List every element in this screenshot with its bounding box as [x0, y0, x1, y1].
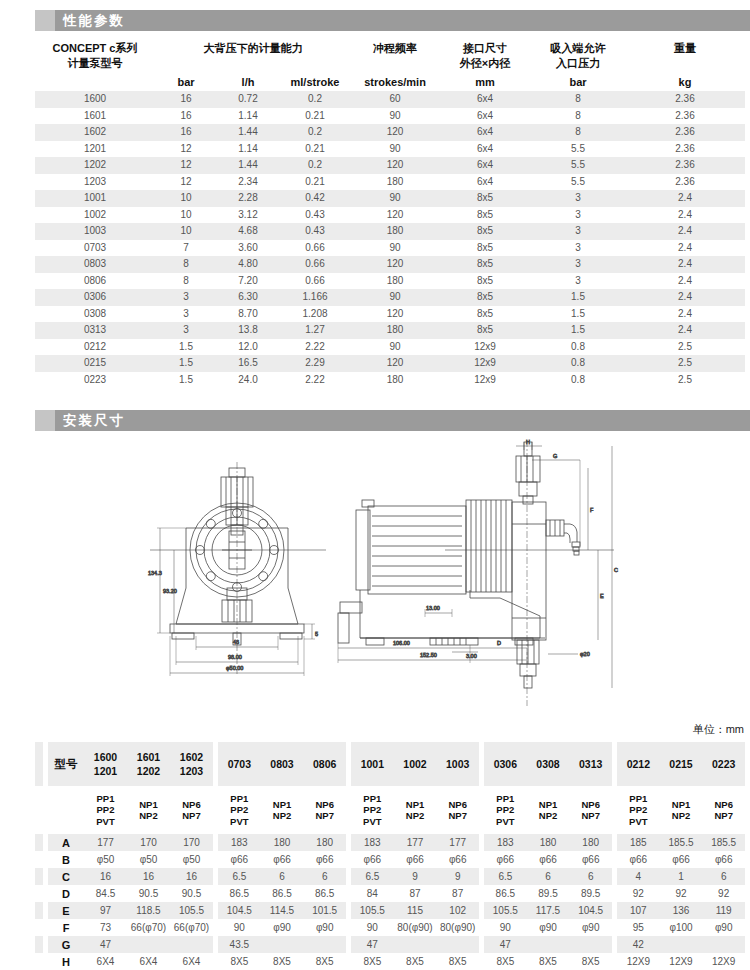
dim-cell: 6	[527, 868, 570, 885]
dim-cell: PP1PP2PVT	[218, 786, 261, 834]
dim-group-4: 021202150223	[617, 742, 745, 786]
dim-cell: φ90	[527, 919, 570, 936]
side-view-drawing: H G F E C 13.00 3.00 106.00 D 152.50 φ20	[338, 439, 618, 706]
dim-cell: 105.5	[351, 902, 394, 919]
dim-cell: 1	[660, 868, 703, 885]
perf-unit-strokesmin: strokes/min	[351, 74, 439, 91]
perf-cell: 1602	[35, 124, 155, 141]
dim-group-1: 86.586.586.5	[218, 885, 346, 902]
perf-cell: 16	[155, 108, 217, 125]
perf-cell: 0.8	[531, 355, 625, 372]
perf-header-weight: 重量	[625, 36, 745, 74]
perf-row-0306: 030636.301.166908x51.52.4	[35, 289, 745, 306]
perf-cell: 6x4	[439, 174, 531, 191]
row-edge	[35, 786, 43, 834]
perf-cell: 180	[351, 372, 439, 389]
dim-cell: 0313	[569, 742, 612, 786]
dim-row-label: D	[48, 885, 84, 902]
dim-group-1: 6.566	[218, 868, 346, 885]
dim-cell: φ90	[569, 919, 612, 936]
dim-cell: NP1NP2	[527, 786, 570, 834]
row-edge	[35, 834, 43, 851]
perf-cell: 1.44	[217, 157, 279, 174]
dim-cell: PP1PP2PVT	[617, 786, 660, 834]
perf-cell: 12	[155, 141, 217, 158]
perf-cell: 2.4	[625, 289, 745, 306]
dim-cell: 16	[84, 868, 127, 885]
dim-cell: φ66	[660, 851, 703, 868]
dim-cell: NP6NP7	[170, 786, 213, 834]
perf-cell: 3	[155, 306, 217, 323]
dim-cell: 102	[436, 902, 479, 919]
dim-row-label: A	[48, 834, 84, 851]
perf-row-1002: 1002103.120.431208x532.4	[35, 207, 745, 224]
dim-cell: 1001	[351, 742, 394, 786]
perf-cell: 120	[351, 355, 439, 372]
perf-cell: 90	[351, 108, 439, 125]
perf-cell: 1003	[35, 223, 155, 240]
dim-cell	[170, 936, 213, 953]
dim-cell: 105.5	[170, 902, 213, 919]
dim-row-G: G4743.5474742	[35, 936, 745, 953]
perf-cell: 8	[531, 91, 625, 108]
dim-cell: 104.5	[569, 902, 612, 919]
perf-cell: 1.44	[217, 124, 279, 141]
dim-cell: φ50	[127, 851, 170, 868]
dim-cell: 105.5	[484, 902, 527, 919]
dim-row-label: C	[48, 868, 84, 885]
perf-unit-kg: kg	[625, 74, 745, 91]
perf-cell: 3	[531, 240, 625, 257]
perf-row-1203: 1203122.340.211806x45.52.36	[35, 174, 745, 191]
dim-cell: 12X9	[660, 953, 703, 970]
dim-cell: 86.5	[261, 885, 304, 902]
perf-cell: 0806	[35, 273, 155, 290]
dim-cell: NP6NP7	[436, 786, 479, 834]
dim-cell: 8X5	[569, 953, 612, 970]
dim-cell: 43.5	[218, 936, 261, 953]
perf-cell: 6x4	[439, 124, 531, 141]
dim-cell: 180	[261, 834, 304, 851]
dim-group-0: F7366(φ70)66(φ70)	[48, 919, 213, 936]
perf-cell: 2.5	[625, 355, 745, 372]
dim-group-3: 030603080313	[484, 742, 612, 786]
dim-cell: 8X5	[351, 953, 394, 970]
perf-cell: 0.21	[279, 108, 351, 125]
row-edge	[35, 936, 43, 953]
dim-cell: 6	[702, 868, 745, 885]
perf-row-0223: 02231.524.02.2218012x90.82.5	[35, 372, 745, 389]
dim-table: 型号16001201160112021602120307030803080610…	[35, 742, 745, 970]
dim-cell: 177	[436, 834, 479, 851]
dim-cell: NP1NP2	[660, 786, 703, 834]
dim-cell: 183	[484, 834, 527, 851]
dim-group-2: 183177177	[351, 834, 479, 851]
dim-cell: 16001201	[84, 742, 127, 786]
dim-cell: 86.5	[303, 885, 346, 902]
perf-row-0313: 0313313.81.271808x51.52.4	[35, 322, 745, 339]
perf-unit-lh: l/h	[217, 74, 279, 91]
dim-cell: φ66	[351, 851, 394, 868]
dim-cell: 86.5	[484, 885, 527, 902]
perf-row-1600: 1600160.720.2606x482.36	[35, 91, 745, 108]
perf-cell: 0.8	[531, 372, 625, 389]
perf-cell: 7	[155, 240, 217, 257]
perf-cell: 1.5	[531, 322, 625, 339]
dim-cell: 6.5	[351, 868, 394, 885]
perf-cell: 2.29	[279, 355, 351, 372]
dim-cell: 114.5	[261, 902, 304, 919]
dim-cell: 6	[303, 868, 346, 885]
perf-cell: 0.2	[279, 124, 351, 141]
dim-cell: φ66	[617, 851, 660, 868]
dim-group-0: PP1PP2PVTNP1NP2NP6NP7	[48, 786, 213, 834]
dim-cell: 115	[394, 902, 437, 919]
perf-cell: 1001	[35, 190, 155, 207]
perf-cell: 8x5	[439, 289, 531, 306]
dim-cell: φ66	[394, 851, 437, 868]
dim-cell: 84	[351, 885, 394, 902]
dim-cell: 16011202	[127, 742, 170, 786]
perf-cell: 180	[351, 223, 439, 240]
perf-row-1201: 1201121.140.21906x45.52.36	[35, 141, 745, 158]
dim-cell	[303, 936, 346, 953]
perf-cell: 180	[351, 273, 439, 290]
perf-cell: 10	[155, 207, 217, 224]
dim-cell: PP1PP2PVT	[351, 786, 394, 834]
perf-row-0803: 080384.800.661208x532.4	[35, 256, 745, 273]
perf-cell: 3.60	[217, 240, 279, 257]
perf-cell: 1.27	[279, 322, 351, 339]
dim-cell: 8X5	[527, 953, 570, 970]
dim-cell: φ66	[436, 851, 479, 868]
dim-cell: 119	[702, 902, 745, 919]
perf-cell: 180	[351, 322, 439, 339]
perf-cell: 0.2	[279, 157, 351, 174]
perf-cell: 6x4	[439, 108, 531, 125]
dim-row-F: F7366(φ70)66(φ70)90φ90φ909080(φ90)80(φ90…	[35, 919, 745, 936]
dim-cell: NP6NP7	[702, 786, 745, 834]
dim-row-label: G	[48, 936, 84, 953]
perf-cell: 2.36	[625, 157, 745, 174]
dim-cell: 16	[170, 868, 213, 885]
dim-cell	[527, 936, 570, 953]
dim-cell: 136	[660, 902, 703, 919]
dim-group-0: C161616	[48, 868, 213, 885]
dim-cell: 1003	[436, 742, 479, 786]
perf-cell: 12x9	[439, 372, 531, 389]
dim-cell: 97	[84, 902, 127, 919]
perf-cell: 90	[351, 289, 439, 306]
dim-cell: 180	[303, 834, 346, 851]
perf-cell: 0.8	[531, 339, 625, 356]
dim-header-models: 型号16001201160112021602120307030803080610…	[35, 742, 745, 786]
perf-cell: 6x4	[439, 91, 531, 108]
dim-cell: 9	[394, 868, 437, 885]
perf-cell: 0.72	[217, 91, 279, 108]
side-dim-slot: 13.00	[426, 605, 440, 611]
unit-note: 单位：mm	[693, 722, 744, 737]
dim-group-3: 8X58X58X5	[484, 953, 612, 970]
dim-cell: NP1NP2	[394, 786, 437, 834]
dim-cell: 6X4	[170, 953, 213, 970]
perf-row-1003: 1003104.680.431808x532.4	[35, 223, 745, 240]
dim-group-3: 47	[484, 936, 612, 953]
dim-group-4: 107136119	[617, 902, 745, 919]
perf-cell: 0.43	[279, 223, 351, 240]
front-dim-height-total: 134.3	[148, 570, 162, 576]
dim-group-1: PP1PP2PVTNP1NP2NP6NP7	[218, 786, 346, 834]
dim-cell: 89.5	[527, 885, 570, 902]
perf-cell: 0306	[35, 289, 155, 306]
dim-group-0: H6X46X46X4	[48, 953, 213, 970]
dim-row-H: H6X46X46X48X58X58X58X58X58X58X58X58X512X…	[35, 953, 745, 970]
perf-cell: 6x4	[439, 157, 531, 174]
dim-cell	[569, 936, 612, 953]
perf-cell: 1.14	[217, 108, 279, 125]
perf-table-body: 1600160.720.2606x482.361601161.140.21906…	[35, 91, 745, 388]
dim-cell: 177	[394, 834, 437, 851]
perf-cell: 0803	[35, 256, 155, 273]
perf-cell: 120	[351, 157, 439, 174]
perf-unit-bar: bar	[155, 74, 217, 91]
dim-cell: 87	[394, 885, 437, 902]
dim-cell: 104.5	[218, 902, 261, 919]
perf-cell: 2.4	[625, 256, 745, 273]
performance-table: CONCEPT c系列 计量泵型号 大背压下的计量能力 冲程频率 接口尺寸 外径…	[35, 36, 745, 388]
dim-cell: 8X5	[261, 953, 304, 970]
perf-cell: 8	[155, 273, 217, 290]
perf-cell: 1601	[35, 108, 155, 125]
dim-cell: φ66	[484, 851, 527, 868]
perf-cell: 2.28	[217, 190, 279, 207]
perf-cell: 16.5	[217, 355, 279, 372]
dim-cell: PP1PP2PVT	[84, 786, 127, 834]
perf-cell: 8x5	[439, 322, 531, 339]
perf-cell: 1201	[35, 141, 155, 158]
dim-group-2: 9080(φ90)80(φ90)	[351, 919, 479, 936]
perf-row-0215: 02151.516.52.2912012x90.82.5	[35, 355, 745, 372]
perf-cell: 8x5	[439, 306, 531, 323]
dim-group-0: A177170170	[48, 834, 213, 851]
perf-cell: 2.4	[625, 306, 745, 323]
installation-section-title: 安装尺寸	[55, 410, 125, 431]
dim-cell: φ66	[702, 851, 745, 868]
dim-cell: 12X9	[702, 953, 745, 970]
perf-unit-mm: mm	[439, 74, 531, 91]
dim-cell: 87	[436, 885, 479, 902]
row-edge	[35, 851, 43, 868]
dim-group-4: 12X912X912X9	[617, 953, 745, 970]
dim-group-2: 105.5115102	[351, 902, 479, 919]
perf-cell: 5.5	[531, 157, 625, 174]
perf-cell: 2.5	[625, 339, 745, 356]
dim-cell: 9	[436, 868, 479, 885]
perf-cell: 8	[531, 108, 625, 125]
perf-cell: 8x5	[439, 273, 531, 290]
dim-cell: φ90	[303, 919, 346, 936]
dim-row-C: C1616166.5666.5996.566416	[35, 868, 745, 885]
dim-cell: φ90	[261, 919, 304, 936]
side-dim-c: C	[614, 567, 618, 573]
dim-cell: 4	[617, 868, 660, 885]
perf-cell: 12.0	[217, 339, 279, 356]
dim-cell: 180	[569, 834, 612, 851]
perf-cell: 8.70	[217, 306, 279, 323]
perf-cell: 2.4	[625, 223, 745, 240]
dim-group-4: 95φ100φ90	[617, 919, 745, 936]
perf-cell: 2.36	[625, 108, 745, 125]
dim-row-A: A177170170183180180183177177183180180185…	[35, 834, 745, 851]
perf-cell: 0212	[35, 339, 155, 356]
dim-cell: NP6NP7	[303, 786, 346, 834]
perf-cell: 3	[531, 207, 625, 224]
perf-cell: 3	[531, 273, 625, 290]
perf-cell: 8	[531, 124, 625, 141]
perf-cell: 8x5	[439, 256, 531, 273]
front-dim-width-overall: φ50.00	[226, 665, 243, 671]
perf-cell: 1.5	[155, 339, 217, 356]
dim-cell: 47	[84, 936, 127, 953]
side-dim-e: E	[600, 593, 604, 599]
perf-header-port-size: 接口尺寸 外径×内径	[439, 36, 531, 74]
dim-cell: 185	[617, 834, 660, 851]
perf-cell: 1002	[35, 207, 155, 224]
dim-group-3: 6.566	[484, 868, 612, 885]
perf-cell: 0.21	[279, 141, 351, 158]
dim-cell: 177	[84, 834, 127, 851]
perf-cell: 2.4	[625, 273, 745, 290]
perf-cell: 12x9	[439, 355, 531, 372]
dim-cell: φ100	[660, 919, 703, 936]
dim-group-1: 183180180	[218, 834, 346, 851]
perf-cell: 2.34	[217, 174, 279, 191]
perf-row-1001: 1001102.280.42908x532.4	[35, 190, 745, 207]
perf-cell: 3	[155, 289, 217, 306]
perf-cell: 90	[351, 141, 439, 158]
dim-header-materials: PP1PP2PVTNP1NP2NP6NP7PP1PP2PVTNP1NP2NP6N…	[35, 786, 745, 834]
perf-unit-mlstroke: ml/stroke	[279, 74, 351, 91]
dim-cell: 8X5	[484, 953, 527, 970]
dim-cell: 0308	[527, 742, 570, 786]
perf-cell: 0.66	[279, 256, 351, 273]
perf-header-model: CONCEPT c系列 计量泵型号	[35, 36, 155, 91]
dim-cell: 86.5	[218, 885, 261, 902]
perf-cell: 60	[351, 91, 439, 108]
dim-cell: 92	[702, 885, 745, 902]
perf-cell: 1.208	[279, 306, 351, 323]
dim-group-3: PP1PP2PVTNP1NP2NP6NP7	[484, 786, 612, 834]
perf-cell: 3	[531, 190, 625, 207]
dim-cell	[394, 936, 437, 953]
dim-row-label	[48, 786, 84, 834]
dim-cell: 90	[351, 919, 394, 936]
perf-cell: 0223	[35, 372, 155, 389]
row-edge	[35, 919, 43, 936]
perf-cell: 1.14	[217, 141, 279, 158]
perf-cell: 3.12	[217, 207, 279, 224]
dim-cell: 80(φ90)	[436, 919, 479, 936]
perf-cell: 120	[351, 256, 439, 273]
row-edge	[35, 868, 43, 885]
dim-cell: 8X5	[303, 953, 346, 970]
row-edge	[35, 953, 43, 970]
section-bar-tab	[35, 410, 55, 431]
dim-cell: 118.5	[127, 902, 170, 919]
dim-cell: 66(φ70)	[170, 919, 213, 936]
side-dim-port: φ20	[580, 651, 590, 657]
dim-cell: 89.5	[569, 885, 612, 902]
perf-cell: 8x5	[439, 190, 531, 207]
dim-group-4: PP1PP2PVTNP1NP2NP6NP7	[617, 786, 745, 834]
dim-group-3: 86.589.589.5	[484, 885, 612, 902]
perf-cell: 0313	[35, 322, 155, 339]
perf-cell: 7.20	[217, 273, 279, 290]
perf-cell: 2.22	[279, 339, 351, 356]
perf-header-row: CONCEPT c系列 计量泵型号 大背压下的计量能力 冲程频率 接口尺寸 外径…	[35, 36, 745, 74]
side-dim-overall-len: 152.50	[420, 652, 437, 658]
dim-cell: 6.5	[218, 868, 261, 885]
dim-cell: 16021203	[170, 742, 213, 786]
dim-cell: 0803	[261, 742, 304, 786]
perf-header-stroke-frequency: 冲程频率	[351, 36, 439, 74]
perf-cell: 0.66	[279, 273, 351, 290]
perf-cell: 1.5	[531, 289, 625, 306]
dim-group-0: G47	[48, 936, 213, 953]
perf-cell: 2.4	[625, 322, 745, 339]
dim-group-0: D84.590.590.5	[48, 885, 213, 902]
perf-cell: 0308	[35, 306, 155, 323]
dim-group-0: E97118.5105.5	[48, 902, 213, 919]
dim-group-4: 42	[617, 936, 745, 953]
dim-group-4: 416	[617, 868, 745, 885]
perf-cell: 10	[155, 190, 217, 207]
dim-cell: 1002	[394, 742, 437, 786]
dim-cell: 12X9	[617, 953, 660, 970]
dim-cell: 80(φ90)	[394, 919, 437, 936]
perf-cell: 3	[531, 223, 625, 240]
perf-cell: 0.21	[279, 174, 351, 191]
performance-section-bar: 性能参数	[35, 10, 750, 31]
dim-cell: 66(φ70)	[127, 919, 170, 936]
dim-group-3: 183180180	[484, 834, 612, 851]
perf-cell: 0.66	[279, 240, 351, 257]
row-edge	[35, 742, 43, 786]
perf-cell: 8	[155, 256, 217, 273]
perf-cell: 8x5	[439, 223, 531, 240]
dim-cell: NP1NP2	[261, 786, 304, 834]
perf-header-suction: 吸入端允许 入口压力	[531, 36, 625, 74]
perf-cell: 90	[351, 190, 439, 207]
dim-group-3: 105.5117.5104.5	[484, 902, 612, 919]
perf-cell: 120	[351, 306, 439, 323]
dim-cell	[127, 936, 170, 953]
dim-cell: 170	[170, 834, 213, 851]
perf-cell: 2.36	[625, 174, 745, 191]
dim-cell: 84.5	[84, 885, 127, 902]
dim-cell: 170	[127, 834, 170, 851]
dim-cell: 8X5	[394, 953, 437, 970]
perf-cell: 16	[155, 124, 217, 141]
dim-cell: 0306	[484, 742, 527, 786]
perf-cell: 12	[155, 157, 217, 174]
dim-cell: 0223	[702, 742, 745, 786]
front-view-drawing: 134.3 93.20 48 98.00 φ50.00 5	[148, 462, 326, 676]
dim-cell: 117.5	[527, 902, 570, 919]
perf-cell: 24.0	[217, 372, 279, 389]
dim-cell: 183	[218, 834, 261, 851]
performance-table-wrap: CONCEPT c系列 计量泵型号 大背压下的计量能力 冲程频率 接口尺寸 外径…	[35, 36, 745, 388]
